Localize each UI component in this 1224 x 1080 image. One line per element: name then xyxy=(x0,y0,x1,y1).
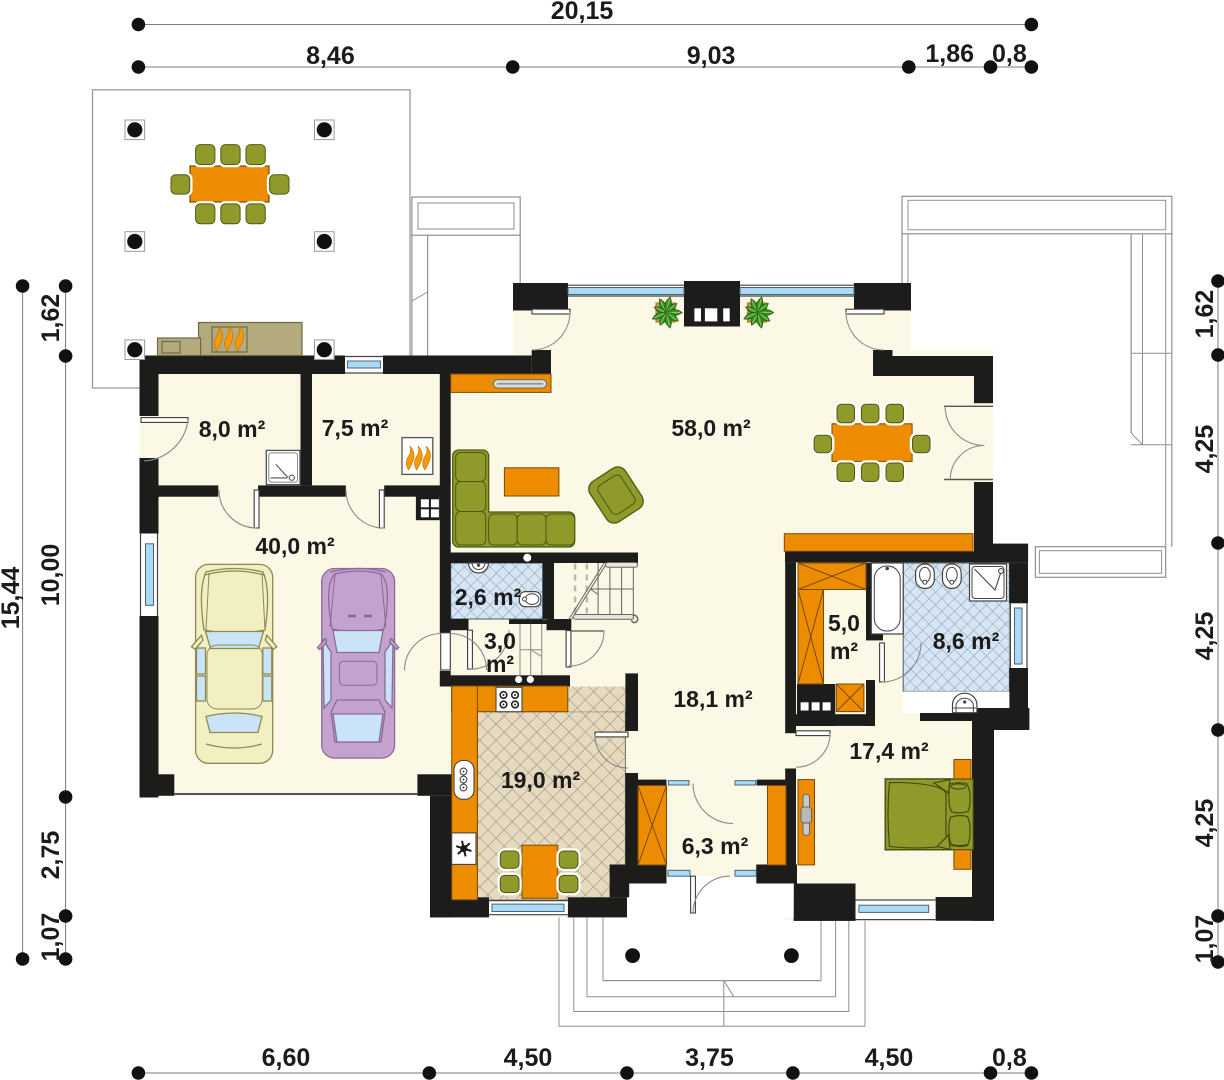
svg-text:4,25: 4,25 xyxy=(1191,612,1219,661)
svg-text:m²: m² xyxy=(830,638,858,664)
svg-text:8,46: 8,46 xyxy=(306,42,355,70)
svg-text:10,00: 10,00 xyxy=(37,544,65,607)
svg-text:6,3 m²: 6,3 m² xyxy=(682,833,749,859)
svg-text:0,8: 0,8 xyxy=(992,1044,1027,1072)
svg-text:7,5 m²: 7,5 m² xyxy=(322,415,389,441)
svg-text:4,25: 4,25 xyxy=(1191,425,1219,474)
svg-text:1,62: 1,62 xyxy=(37,294,65,343)
svg-text:0,8: 0,8 xyxy=(992,40,1027,68)
svg-text:1,62: 1,62 xyxy=(1191,290,1219,339)
svg-text:2,6 m²: 2,6 m² xyxy=(455,584,522,610)
svg-text:4,50: 4,50 xyxy=(865,1044,914,1072)
svg-text:8,0 m²: 8,0 m² xyxy=(199,416,266,442)
svg-text:2,75: 2,75 xyxy=(37,831,65,880)
svg-text:18,1 m²: 18,1 m² xyxy=(673,686,753,712)
svg-text:8,6 m²: 8,6 m² xyxy=(933,628,1000,654)
svg-text:4,25: 4,25 xyxy=(1191,799,1219,848)
svg-text:3,75: 3,75 xyxy=(685,1044,734,1072)
svg-text:9,03: 9,03 xyxy=(687,42,736,70)
svg-text:6,60: 6,60 xyxy=(262,1044,311,1072)
svg-text:1,07: 1,07 xyxy=(37,913,65,962)
svg-text:15,44: 15,44 xyxy=(0,567,25,630)
svg-text:58,0 m²: 58,0 m² xyxy=(671,415,751,441)
svg-text:20,15: 20,15 xyxy=(551,0,614,25)
svg-text:1,86: 1,86 xyxy=(925,40,974,68)
svg-text:m²: m² xyxy=(486,651,514,677)
svg-text:1,07: 1,07 xyxy=(1191,915,1219,964)
svg-text:17,4 m²: 17,4 m² xyxy=(849,738,929,764)
svg-text:40,0 m²: 40,0 m² xyxy=(255,533,335,559)
svg-text:19,0 m²: 19,0 m² xyxy=(501,767,581,793)
svg-text:5,0: 5,0 xyxy=(828,610,860,636)
svg-text:4,50: 4,50 xyxy=(504,1044,553,1072)
